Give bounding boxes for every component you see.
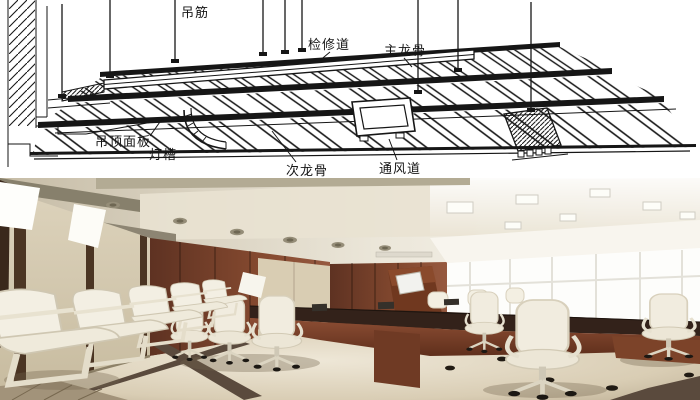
table-leg-panel bbox=[374, 330, 420, 388]
label-air-duct: 通风道 bbox=[379, 162, 421, 177]
photo-canvas bbox=[0, 178, 700, 400]
label-access-walkway: 检修道 bbox=[308, 38, 350, 53]
wall-hatch bbox=[9, 0, 35, 126]
label-main-runner: 主龙骨 bbox=[384, 44, 426, 59]
diagram-ink: 吊筋 检修道 主龙骨 吊顶面板 灯槽 次龙骨 通风道 bbox=[8, 0, 696, 178]
conference-room-photo bbox=[0, 178, 700, 400]
diagram-canvas: 吊筋 检修道 主龙骨 吊顶面板 灯槽 次龙骨 通风道 bbox=[0, 0, 700, 178]
composite-image: 吊筋 检修道 主龙骨 吊顶面板 灯槽 次龙骨 通风道 bbox=[0, 0, 700, 400]
label-secondary-runner: 次龙骨 bbox=[286, 163, 328, 178]
ceiling-structure-diagram: 吊筋 检修道 主龙骨 吊顶面板 灯槽 次龙骨 通风道 bbox=[0, 0, 700, 178]
label-hanger-rod: 吊筋 bbox=[181, 5, 209, 21]
label-light-cove: 灯槽 bbox=[149, 148, 177, 163]
lectern-screen bbox=[396, 272, 424, 294]
label-ceiling-panel: 吊顶面板 bbox=[95, 135, 151, 150]
